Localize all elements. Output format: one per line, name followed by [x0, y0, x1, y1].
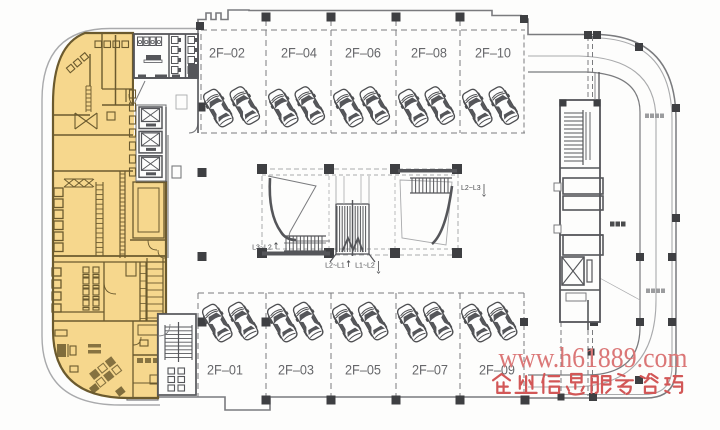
svg-text:2F–04: 2F–04 — [281, 45, 317, 61]
svg-text:L3~L2: L3~L2 — [252, 245, 272, 252]
svg-text:2F–08: 2F–08 — [411, 45, 447, 61]
svg-text:2F–03: 2F–03 — [278, 362, 314, 378]
svg-text:2F–07: 2F–07 — [412, 362, 448, 378]
svg-text:L2~L1: L2~L1 — [325, 263, 345, 270]
svg-text:L1~L2: L1~L2 — [355, 263, 375, 270]
svg-text:www.h61889.com: www.h61889.com — [499, 342, 688, 374]
svg-text:2F–02: 2F–02 — [209, 45, 245, 61]
svg-text:L2~L3: L2~L3 — [461, 185, 481, 192]
svg-text:2F–10: 2F–10 — [475, 45, 511, 61]
svg-text:2F–01: 2F–01 — [207, 362, 243, 378]
svg-text:2F–06: 2F–06 — [345, 45, 381, 61]
svg-text:2F–05: 2F–05 — [345, 362, 381, 378]
